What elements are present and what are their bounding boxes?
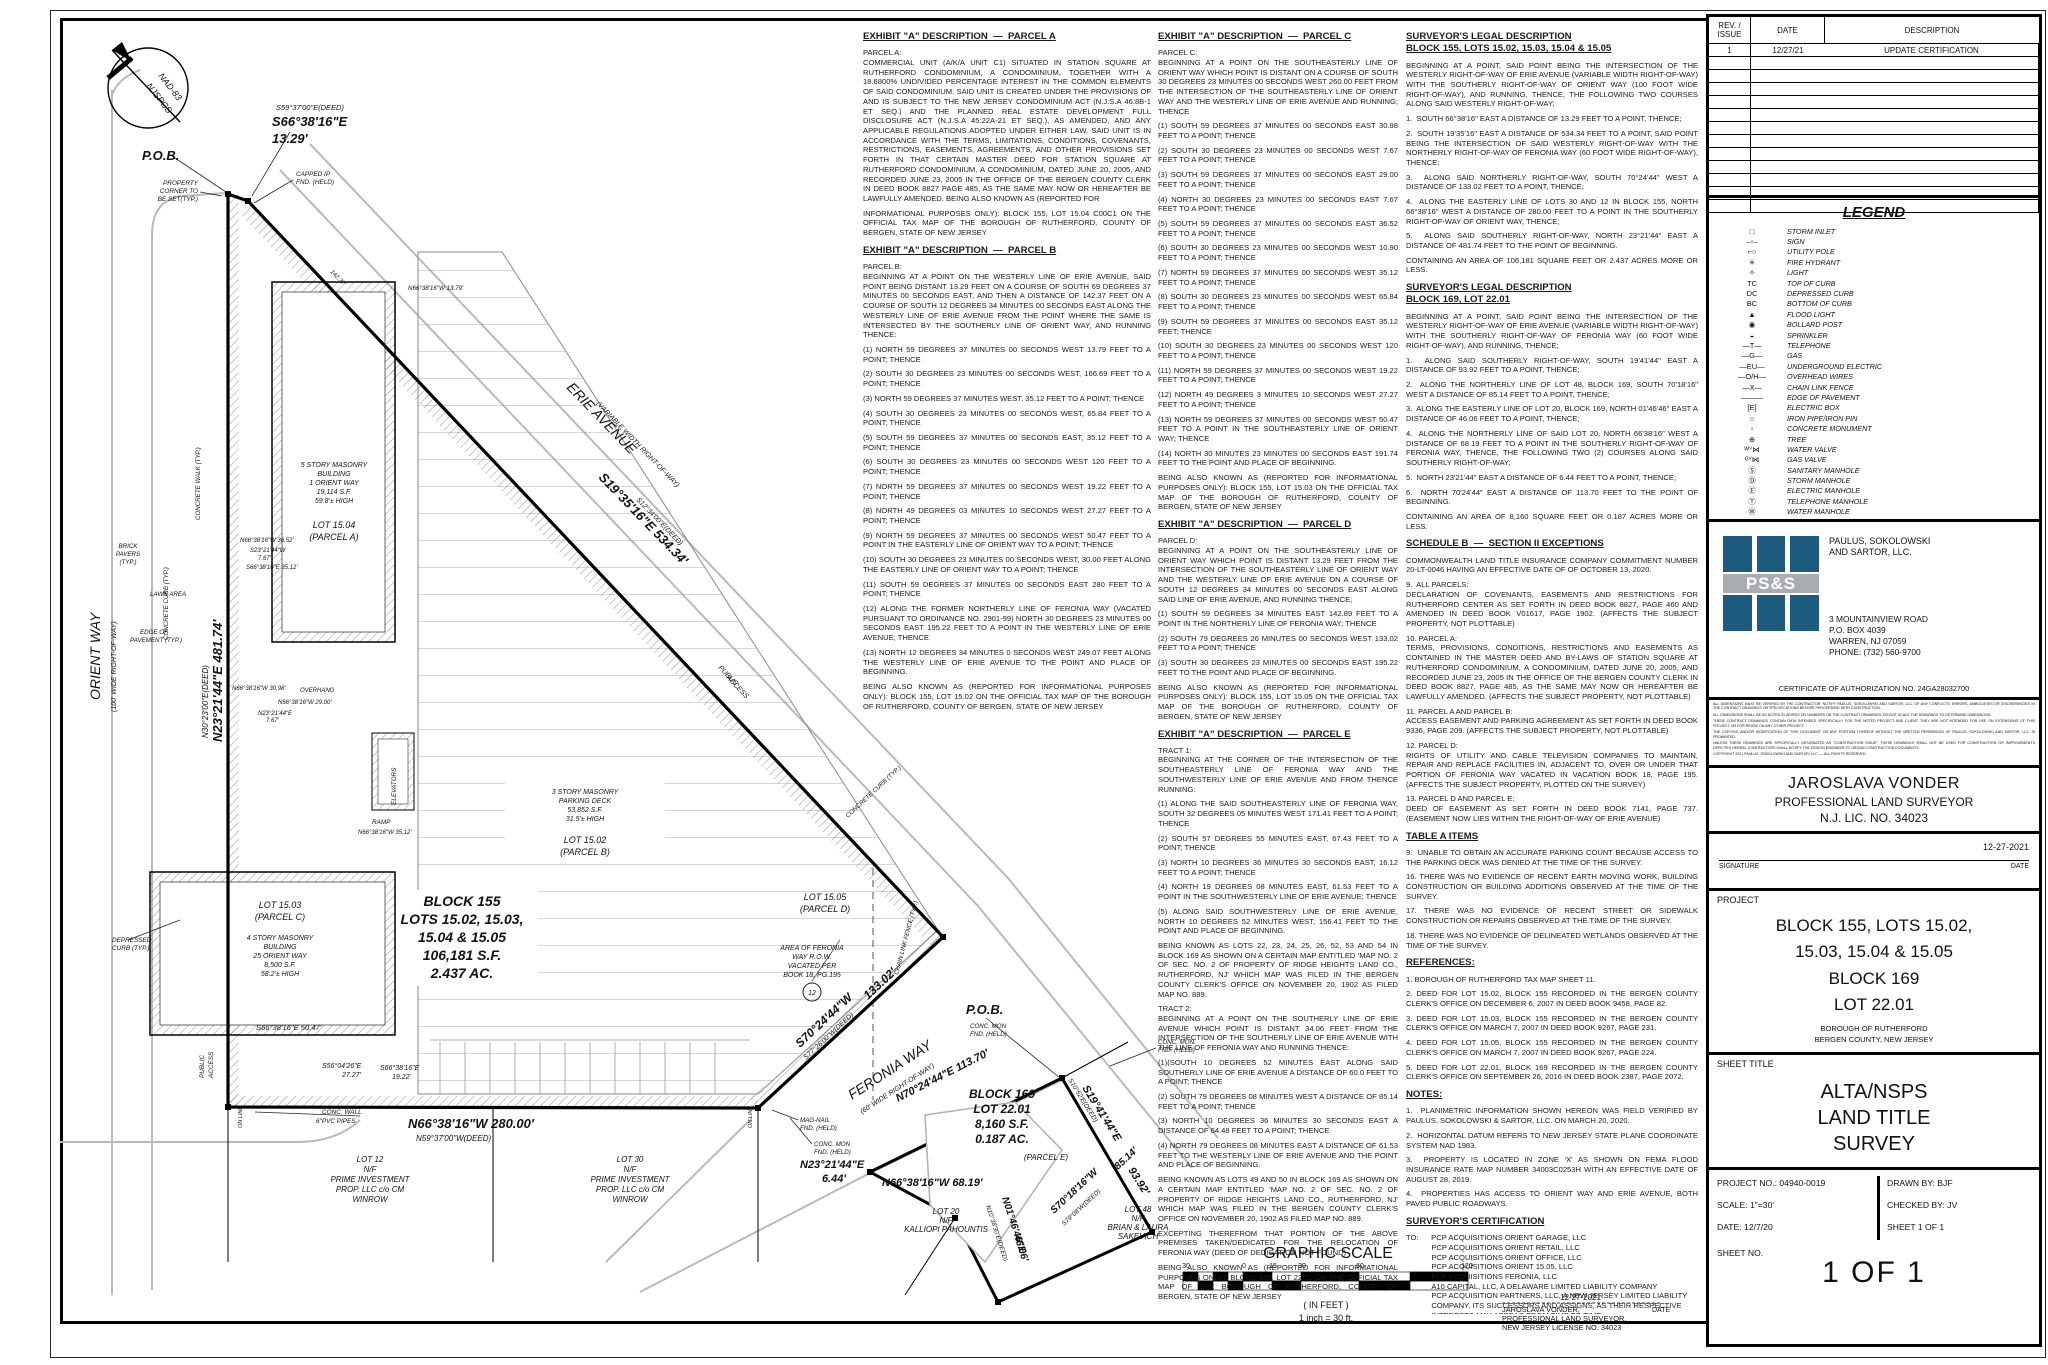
revision-empty-cell <box>1825 161 2039 174</box>
revision-col-desc: DESCRIPTION <box>1825 17 2039 44</box>
legend-item: Ⓢ SANITARY MANHOLE <box>1717 465 2031 475</box>
legend-item: [E] ELECTRIC BOX <box>1717 403 2031 413</box>
legal-paragraph: 6. NORTH 70'24'44" EAST A DISTANCE OF 11… <box>1406 488 1698 507</box>
map-label: AREA OF FERONIA <box>779 945 844 952</box>
map-label: PUBLIC <box>199 1055 206 1078</box>
legal-paragraph: BEGINNING AT A POINT, SAID POINT BEING T… <box>1406 61 1698 110</box>
legal-paragraph: EXHIBIT "A" DESCRIPTION — PARCEL E <box>1158 729 1398 741</box>
legal-paragraph: 13. PARCEL D AND PARCEL E: DEED OF EASEM… <box>1406 794 1698 823</box>
map-label: ORIENT WAY <box>87 611 103 700</box>
legend-symbol-icon: [E] <box>1717 403 1787 412</box>
revision-empty-cell <box>1751 109 1825 122</box>
legal-paragraph: (8) NORTH 49 DEGREES 03 MINUTES 10 SECON… <box>863 506 1151 525</box>
map-label: 7.67' <box>266 718 280 724</box>
legal-paragraph: 4. ALONG THE NORTHERLY LINE OF SAID LOT … <box>1406 429 1698 468</box>
legend-symbol-icon: —X— <box>1717 383 1787 392</box>
legal-paragraph: (9) SOUTH 59 DEGREES 37 MINUTES 00 SECON… <box>1158 317 1398 336</box>
legal-paragraph: 2. SOUTH 19'35'16" EAST A DISTANCE OF 53… <box>1406 129 1698 168</box>
legal-paragraph: (1) ALONG THE SAID SOUTHEASTERLY LINE OF… <box>1158 799 1398 828</box>
legend: LEGEND □ STORM INLET –▫– SIGN ⌐○ <box>1709 198 2039 522</box>
map-label: OVERHANG <box>300 688 335 694</box>
revision-empty-cell <box>1709 148 1751 161</box>
map-label: FND. (HELD) <box>800 1125 837 1132</box>
map-label: N66°38'16"W 29.00' <box>278 700 332 706</box>
legal-paragraph: (12) ALONG THE FORMER NORTHERLY LINE OF … <box>863 604 1151 643</box>
legend-symbol-icon: ᵂⱽ⋈ <box>1717 445 1787 454</box>
map-label: ELEVATORS <box>391 767 398 805</box>
map-label: LOT 30 <box>617 1155 644 1164</box>
legal-paragraph: (8) SOUTH 30 DEGREES 23 MINUTES 00 SECON… <box>1158 292 1398 311</box>
legend-symbol-icon: ✳ <box>1717 258 1787 267</box>
legal-paragraph: (13) NORTH 12 DEGREES 34 MINUTES 0 SECON… <box>863 648 1151 677</box>
legend-item: BC BOTTOM OF CURB <box>1717 299 2031 309</box>
map-label: CONC. MON <box>814 1141 851 1148</box>
legend-item: Ⓦ WATER MANHOLE <box>1717 507 2031 517</box>
legal-paragraph: 9. ALL PARCELS: DECLARATION OF COVENANTS… <box>1406 580 1698 629</box>
checked-by: CHECKED BY: JV <box>1887 1200 1957 1210</box>
legend-item-label: IRON PIPE/IRON PIN <box>1787 414 1857 423</box>
legend-symbol-icon: ⊕ <box>1717 435 1787 444</box>
legal-paragraph: BEING ALSO KNOWN AS (REPORTED FOR INFORM… <box>1158 1263 1398 1302</box>
legend-symbol-icon: Ⓢ <box>1717 465 1787 476</box>
legend-item-label: LIGHT <box>1787 268 1808 277</box>
map-label: 106,181 S.F. <box>423 947 502 963</box>
legal-paragraph: TRACT 2: BEGINNING AT A POINT ON THE SOU… <box>1158 1004 1398 1053</box>
map-label: 8,500 S.F. <box>264 962 295 969</box>
legal-paragraph: INFORMATIONAL PURPOSES ONLY): BLOCK 155,… <box>863 209 1151 238</box>
map-label: ACCESS <box>208 1051 215 1079</box>
map-label: EDGE OF <box>140 629 169 636</box>
legal-paragraph: (7) NORTH 59 DEGREES 37 MINUTES 00 SECON… <box>863 482 1151 501</box>
map-label: 7.67' <box>258 556 272 562</box>
firm-address-1: 3 MOUNTAINVIEW ROAD <box>1829 614 1928 625</box>
firm-block: PS&S PAULUS, SOKOLOWSKI AND SARTOR, LLC.… <box>1709 522 2039 700</box>
revision-empty-cell <box>1709 57 1751 70</box>
firm-name-line2: AND SARTOR, LLC. <box>1829 547 1930 558</box>
revision-empty-cell <box>1825 122 2039 135</box>
map-label: BLOCK 155 <box>423 893 500 909</box>
legal-paragraph: BEGINNING AT A POINT, SAID POINT BEING T… <box>1406 312 1698 351</box>
project-label: PROJECT <box>1717 895 1759 905</box>
map-label: S23°21'44"W <box>250 548 287 554</box>
disclaimer-paragraph: THE COPYING AND/OR MODIFICATION OF THIS … <box>1713 730 2035 739</box>
legend-item-label: GAS <box>1787 351 1802 360</box>
map-label: BUILDING <box>317 471 351 478</box>
legal-paragraph: REFERENCES: <box>1406 957 1698 969</box>
legal-paragraph: 1. ALONG SAID SOUTHERLY RIGHT-OF-WAY, SO… <box>1406 356 1698 375</box>
surveyor-license: N.J. LIC. NO. 34023 <box>1820 811 1928 825</box>
legal-paragraph: 3. ALONG THE EASTERLY LINE OF LOT 20, BL… <box>1406 404 1698 423</box>
surveyor-block: JAROSLAVA VONDER PROFESSIONAL LAND SURVE… <box>1709 768 2039 834</box>
map-label: PRIME INVESTMENT <box>330 1175 410 1184</box>
legal-paragraph: 11. PARCEL A AND PARCEL B: ACCESS EASEME… <box>1406 707 1698 736</box>
legal-paragraph: (10) SOUTH 30 DEGREES 23 MINUTES 00 SECO… <box>1158 341 1398 360</box>
legend-item-label: FIRE HYDRANT <box>1787 258 1840 267</box>
disclaimer-block: ALL DIMENSIONS MUST BE VERIFIED BY THE C… <box>1709 700 2039 768</box>
sheet-no-value: 1 OF 1 <box>1709 1256 2039 1290</box>
legal-paragraph: SCHEDULE B — SECTION II EXCEPTIONS <box>1406 538 1698 550</box>
legend-item-label: ELECTRIC BOX <box>1787 403 1840 412</box>
legend-item-label: GAS VALVE <box>1787 455 1827 464</box>
legal-paragraph: TRACT 1: BEGINNING AT THE CORNER OF THE … <box>1158 746 1398 795</box>
legal-paragraph: (13) NORTH 59 DEGREES 37 MINUTES 00 SECO… <box>1158 415 1398 444</box>
map-label: N66°38'16"W 35.12' <box>358 830 412 836</box>
legal-paragraph: (5) SOUTH 59 DEGREES 37 MINUTES 00 SECON… <box>863 433 1151 452</box>
map-label: PROP. LLC c/o CM <box>336 1185 405 1194</box>
map-label: WINROW <box>352 1195 389 1204</box>
legal-paragraph: TO: PCP ACQUISITIONS ORIENT GARAGE, LLC … <box>1406 1233 1698 1314</box>
map-label: PAVEMENT (TYP.) <box>130 637 182 644</box>
legal-paragraph: 1. BOROUGH OF RUTHERFORD TAX MAP SHEET 1… <box>1406 975 1698 985</box>
legal-paragraph: (1) SOUTH 59 DEGREES 37 MINUTES 00 SECON… <box>1158 121 1398 140</box>
sheet-count: SHEET 1 OF 1 <box>1887 1222 1944 1232</box>
legal-paragraph: (11) SOUTH 59 DEGREES 37 MINUTES 00 SECO… <box>863 580 1151 599</box>
legend-item: Ⓔ ELECTRIC MANHOLE <box>1717 486 2031 496</box>
legend-symbol-icon: ◒ <box>1717 331 1787 340</box>
revision-empty-cell <box>1825 135 2039 148</box>
map-label: 19,114 S.F. <box>317 489 352 496</box>
legend-item: ——— EDGE OF PAVEMENT <box>1717 392 2031 402</box>
revision-empty-cell <box>1825 70 2039 83</box>
legend-item: —X— CHAIN LINK FENCE <box>1717 382 2031 392</box>
map-label: 1 inch = 30 ft. <box>1299 1313 1353 1323</box>
legal-paragraph: (1) SOUTH 59 DEGREES 34 MINUTES EAST 142… <box>1158 609 1398 628</box>
legend-item-label: STORM INLET <box>1787 227 1835 236</box>
map-label: 53,852 S.F. <box>567 807 602 814</box>
revision-date: 12/27/21 <box>1751 44 1825 57</box>
legend-item: ○ IRON PIPE/IRON PIN <box>1717 413 2031 423</box>
revision-rev: 1 <box>1709 44 1751 57</box>
legal-paragraph: (4) NORTH 79 DEGREES 08 MINUTES EAST A D… <box>1158 1141 1398 1170</box>
legal-paragraph: PARCEL D: BEGINNING AT A POINT ON THE SO… <box>1158 536 1398 604</box>
legend-symbol-icon: DC <box>1717 289 1787 298</box>
map-label: FND. (HELD) <box>296 179 334 186</box>
legend-symbol-icon: TC <box>1717 279 1787 288</box>
map-label: 4 STORY MASONRY <box>247 935 315 942</box>
legal-paragraph: (3) NORTH 59 DEGREES 37 MINUTES WEST, 35… <box>863 394 1151 404</box>
revision-empty-rows <box>1709 57 2039 213</box>
map-label: 58.2'± HIGH <box>261 971 300 978</box>
legend-item-label: TREE <box>1787 435 1806 444</box>
legend-item-label: SANITARY MANHOLE <box>1787 466 1860 475</box>
legend-item: ✧ LIGHT <box>1717 268 2031 278</box>
legal-paragraph: (4) NORTH 19 DEGREES 08 MINUTES EAST, 61… <box>1158 882 1398 901</box>
map-label: BOOK 18, PG.195 <box>783 972 841 979</box>
legend-item-label: CONCRETE MONUMENT <box>1787 424 1872 433</box>
map-label: 6"PVC PIPES <box>316 1118 356 1125</box>
legal-paragraph: SURVEYOR'S CERTIFICATION <box>1406 1216 1698 1228</box>
legend-item-label: SPRINKLER <box>1787 331 1828 340</box>
map-label: N/F <box>364 1165 378 1174</box>
map-label: ON LINE <box>748 1106 754 1128</box>
disclaimer-paragraph: UNLESS THESE DRAWINGS ARE SPECIFICALLY D… <box>1713 741 2035 750</box>
legend-item: —T— TELEPHONE <box>1717 340 2031 350</box>
map-label: FND. (HELD) <box>814 1149 851 1156</box>
legend-symbol-icon: –▫– <box>1717 237 1787 246</box>
legend-symbol-icon: BC <box>1717 299 1787 308</box>
surveyor-title: PROFESSIONAL LAND SURVEYOR <box>1775 795 1974 809</box>
legal-paragraph: (1)(SOUTH 10 DEGREES 52 MINUTES EAST ALO… <box>1158 1058 1398 1087</box>
disclaimer-paragraph: ALL DIMENSIONS SHALL BE AS NOTED IN WORD… <box>1713 713 2035 717</box>
legal-paragraph: BEING KNOWN AS LOTS 49 AND 50 IN BLOCK 1… <box>1158 1175 1398 1224</box>
legal-paragraph: (6) SOUTH 30 DEGREES 23 MINUTES 00 SECON… <box>863 457 1151 476</box>
legend-item: ⊕ TREE <box>1717 434 2031 444</box>
legal-paragraph: (12) NORTH 49 DEGREES 3 MINUTES 10 SECON… <box>1158 390 1398 409</box>
legal-paragraph: PARCEL C: BEGINNING AT A POINT ON THE SO… <box>1158 48 1398 116</box>
legend-item-label: CHAIN LINK FENCE <box>1787 383 1854 392</box>
revision-empty-cell <box>1825 96 2039 109</box>
legal-paragraph: 1. PLANIMETRIC INFORMATION SHOWN HEREON … <box>1406 1106 1698 1125</box>
map-label: N23°21'44"E <box>800 1159 865 1171</box>
map-label: PAVERS <box>116 551 141 558</box>
legal-paragraph: (5) ALONG SAID SOUTHWESTERLY LINE OF ERI… <box>1158 907 1398 936</box>
project-municipality: BOROUGH OF RUTHERFORD <box>1709 1024 2039 1034</box>
map-label: 15.04 & 15.05 <box>418 929 506 945</box>
map-label: LOT 15.05 <box>804 892 848 902</box>
legend-symbol-icon: Ⓦ <box>1717 506 1787 517</box>
sheet-title-line1: ALTA/NSPS <box>1709 1079 2039 1105</box>
map-label: N66°38'16"W 36.52' <box>240 538 294 544</box>
project-line3: BLOCK 169 <box>1709 966 2039 992</box>
legend-symbol-icon: —EU— <box>1717 362 1787 371</box>
legal-paragraph: EXHIBIT "A" DESCRIPTION — PARCEL A <box>863 31 1151 43</box>
legal-paragraph: SURVEYOR'S LEGAL DESCRIPTION BLOCK 155, … <box>1406 31 1698 56</box>
map-label: S66°38'16"E 50.47' <box>256 1023 322 1032</box>
legal-paragraph: (3) NORTH 10 DEGREES 36 MINUTES 30 SECON… <box>1158 858 1398 877</box>
legend-item: ✳ FIRE HYDRANT <box>1717 257 2031 267</box>
map-label: S56°04'26"E <box>322 1062 362 1070</box>
map-label: 6.44' <box>822 1173 846 1185</box>
disclaimer-paragraph: COPYRIGHT 2021 PAULUS, SOKOLOWSKI AND SA… <box>1713 752 2035 756</box>
legal-paragraph: 12. PARCEL D: RIGHTS OF UTILITY AND CABL… <box>1406 741 1698 790</box>
legend-item: ᵂⱽ⋈ WATER VALVE <box>1717 444 2031 454</box>
project-number: PROJECT NO.: 04940-0019 <box>1717 1178 1825 1188</box>
legal-paragraph: 5. DEED FOR LOT 22.01, BLOCK 169 RECORDE… <box>1406 1063 1698 1082</box>
map-label: S66°38'16"E 35.12' <box>246 565 298 571</box>
legal-paragraph: (11) NORTH 59 DEGREES 37 MINUTES 00 SECO… <box>1158 366 1398 385</box>
legal-paragraph: (3) SOUTH 30 DEGREES 23 MINUTES 00 SECON… <box>1158 658 1398 677</box>
map-label: LOT 15.02 <box>564 835 607 845</box>
map-label: CONC. WALL <box>322 1109 362 1116</box>
map-label: 27.27' <box>341 1072 362 1079</box>
psands-logo-icon: PS&S <box>1723 536 1819 632</box>
legend-item-label: OVERHEAD WIRES <box>1787 372 1853 381</box>
legal-paragraph: (3) SOUTH 59 DEGREES 37 MINUTES 00 SECON… <box>1158 170 1398 189</box>
map-label: N66°38'16"W 280.00' <box>408 1116 535 1131</box>
surveyor-name: JAROSLAVA VONDER <box>1788 775 1960 793</box>
revision-empty-cell <box>1709 109 1751 122</box>
map-label: 31.5'± HIGH <box>566 816 605 823</box>
map-label: S66°38'16"E <box>380 1064 420 1072</box>
legal-paragraph: BEING ALSO KNOWN AS (REPORTED FOR INFORM… <box>863 682 1151 711</box>
legend-item-label: EDGE OF PAVEMENT <box>1787 393 1860 402</box>
legal-paragraph: (10) SOUTH 30 DEGREES 23 MINUTES 00 SECO… <box>863 555 1151 574</box>
map-label: 13.29' <box>272 131 309 146</box>
legend-item: –▫– SIGN <box>1717 236 2031 246</box>
map-label: (PARCEL D) <box>800 904 850 914</box>
legal-paragraph: (2) SOUTH 30 DEGREES 23 MINUTES 00 SECON… <box>863 369 1151 388</box>
legend-item-label: TOP OF CURB <box>1787 279 1836 288</box>
legend-item: ᴳⱽ⋈ GAS VALVE <box>1717 455 2031 465</box>
legend-symbol-icon: —G— <box>1717 351 1787 360</box>
map-label: N/F <box>624 1165 638 1174</box>
firm-address-2: P.O. BOX 4039 <box>1829 625 1928 636</box>
legal-paragraph: CONTAINING AN AREA OF 106,181 SQUARE FEE… <box>1406 256 1698 275</box>
revision-empty-cell <box>1709 135 1751 148</box>
legal-paragraph: (1) NORTH 59 DEGREES 37 MINUTES 00 SECON… <box>863 345 1151 364</box>
sheet-info-block: PROJECT NO.: 04940-0019 SCALE: 1"=30' DA… <box>1709 1170 2039 1344</box>
legend-title: LEGEND <box>1717 204 2031 221</box>
revision-empty-cell <box>1751 174 1825 187</box>
map-label: WAY R.O.W. <box>792 954 832 961</box>
legal-paragraph: 5. ALONG SAID SOUTHERLY RIGHT-OF-WAY, NO… <box>1406 231 1698 250</box>
legal-paragraph: 2. HORIZONTAL DATUM REFERS TO NEW JERSEY… <box>1406 1131 1698 1150</box>
map-label: N23°21'44"E <box>258 711 293 717</box>
legal-paragraph: 2. ALONG THE NORTHERLY LINE OF LOT 48, B… <box>1406 380 1698 399</box>
legend-symbol-icon: Ⓣ <box>1717 496 1787 507</box>
map-label: (100' WIDE RIGHT-OF-WAY) <box>111 621 118 712</box>
revision-empty-cell <box>1709 161 1751 174</box>
legend-symbol-icon: ▲ <box>1717 310 1787 319</box>
map-label: CONCRETE WALK (TYP.) <box>195 447 202 520</box>
exhibit-a-column-2: EXHIBIT "A" DESCRIPTION — PARCEL CPARCEL… <box>1158 24 1398 1314</box>
legal-paragraph: (14) NORTH 30 MINUTES 23 MINUTES 00 SECO… <box>1158 449 1398 468</box>
legend-item-label: TELEPHONE <box>1787 341 1831 350</box>
map-label: 2.437 AC. <box>430 965 494 981</box>
map-label: (PARCEL A) <box>309 532 358 542</box>
legend-symbol-icon: ○ <box>1717 414 1787 423</box>
map-label: CURB (TYP.) <box>112 945 150 952</box>
legend-symbol-icon: ▫ <box>1717 424 1787 433</box>
signature-line <box>1719 860 2029 861</box>
map-label: (PARCEL C) <box>255 912 305 922</box>
signature-date: 12-27-2021 <box>1983 842 2029 852</box>
legal-paragraph: 9. UNABLE TO OBTAIN AN ACCURATE PARKING … <box>1406 848 1698 867</box>
revision-empty-cell <box>1825 109 2039 122</box>
legend-item-label: BOLLARD POST <box>1787 320 1842 329</box>
map-label: PROFESSIONAL LAND SURVEYOR, <box>1502 1314 1626 1323</box>
legal-paragraph: 1. SOUTH 66°38'16" EAST A DISTANCE OF 13… <box>1406 114 1698 124</box>
sheet-title-line3: SURVEY <box>1709 1131 2039 1157</box>
legal-paragraph: 4. PROPERTIES HAS ACCESS TO ORIENT WAY A… <box>1406 1189 1698 1208</box>
legal-paragraph: 3. PROPERTY IS LOCATED IN ZONE 'X' AS SH… <box>1406 1155 1698 1184</box>
legend-item-label: ELECTRIC MANHOLE <box>1787 486 1860 495</box>
map-label: BUILDING <box>263 944 297 951</box>
map-label: NEW JERSEY LICENSE NO. 34023 <box>1502 1323 1621 1332</box>
map-label: WINROW <box>612 1195 649 1204</box>
map-label: 1 ORIENT WAY <box>309 480 360 487</box>
date-value: DATE: 12/7/20 <box>1717 1222 1773 1232</box>
legend-item-label: WATER VALVE <box>1787 445 1837 454</box>
legal-paragraph: BEING ALSO KNOWN AS (REPORTED FOR INFORM… <box>1158 473 1398 512</box>
revision-empty-cell <box>1751 70 1825 83</box>
map-label: VACATED PER <box>788 963 837 970</box>
project-line1: BLOCK 155, LOTS 15.02, <box>1709 913 2039 939</box>
legal-paragraph: (6) SOUTH 30 DEGREES 23 MINUTES 00 SECON… <box>1158 243 1398 262</box>
legal-paragraph: 4. DEED FOR LOT 15.05, BLOCK 155 RECORDE… <box>1406 1038 1698 1057</box>
legend-item: ◉ BOLLARD POST <box>1717 320 2031 330</box>
exhibit-a-column-1: EXHIBIT "A" DESCRIPTION — PARCEL APARCEL… <box>863 24 1151 1314</box>
legend-item-label: WATER MANHOLE <box>1787 507 1850 516</box>
map-label: (PARCEL B) <box>560 847 610 857</box>
project-line2: 15.03, 15.04 & 15.05 <box>1709 939 2039 965</box>
legend-item-label: TELEPHONE MANHOLE <box>1787 497 1868 506</box>
legal-paragraph: 5. NORTH 23'21'44" EAST A DISTANCE OF 6.… <box>1406 473 1698 483</box>
legal-paragraph: 2. DEED FOR LOT 15.02, BLOCK 155 RECORDE… <box>1406 989 1698 1008</box>
project-line4: LOT 22.01 <box>1709 992 2039 1018</box>
revision-empty-cell <box>1709 83 1751 96</box>
title-block-panel: REV. / ISSUE DATE DESCRIPTION 1 12/27/21… <box>1706 14 2042 1347</box>
legend-item: —O/H— OVERHEAD WIRES <box>1717 371 2031 381</box>
legend-item: ⌐○ UTILITY POLE <box>1717 247 2031 257</box>
legend-item: ▲ FLOOD LIGHT <box>1717 309 2031 319</box>
legal-paragraph: (4) SOUTH 30 DEGREES 23 MINUTES 00 SECON… <box>863 409 1151 428</box>
legend-item: Ⓓ STORM MANHOLE <box>1717 475 2031 485</box>
signature-block: 12-27-2021 SIGNATURE DATE <box>1709 834 2039 891</box>
map-label: 25 ORIENT WAY <box>252 953 308 960</box>
legal-paragraph: 17. THERE WAS NO EVIDENCE OF RECENT STRE… <box>1406 906 1698 925</box>
legal-paragraph: BEING KNOWN AS LOTS 22, 23, 24, 25, 26, … <box>1158 941 1398 999</box>
info-divider <box>1877 1176 1880 1240</box>
legend-item: Ⓣ TELEPHONE MANHOLE <box>1717 496 2031 506</box>
revision-desc: UPDATE CERTIFICATION <box>1825 44 2039 57</box>
survey-sheet: S59°37'00"E(DEED)S66°38'16"E13.29'P.O.B.… <box>0 0 2048 1365</box>
legal-paragraph: (2) SOUTH 57 DEGREES 55 MINUTES EAST, 67… <box>1158 834 1398 853</box>
project-block: PROJECT BLOCK 155, LOTS 15.02, 15.03, 15… <box>1709 891 2039 1055</box>
revision-header-row: REV. / ISSUE DATE DESCRIPTION <box>1709 17 2039 44</box>
legend-symbol-icon: ⌐○ <box>1717 247 1787 256</box>
map-label: N66°38'16"W 30.98' <box>232 686 286 692</box>
revision-empty-cell <box>1751 148 1825 161</box>
date-label: DATE <box>2011 863 2029 870</box>
legal-paragraph: EXCEPTING THEREFROM THAT PORTION OF THE … <box>1158 1229 1398 1258</box>
legend-symbol-icon: Ⓔ <box>1717 485 1787 496</box>
map-label: 5 STORY MASONRY <box>301 462 369 469</box>
revision-empty-cell <box>1751 57 1825 70</box>
legend-item: TC TOP OF CURB <box>1717 278 2031 288</box>
map-label: (TYP.) <box>119 559 136 566</box>
legend-item-label: DEPRESSED CURB <box>1787 289 1854 298</box>
map-label: 3 STORY MASONRY <box>552 789 620 796</box>
map-label: PRIME INVESTMENT <box>590 1175 670 1184</box>
legend-item: ◒ SPRINKLER <box>1717 330 2031 340</box>
sheet-title-label: SHEET TITLE <box>1717 1059 1774 1069</box>
revision-empty-cell <box>1751 96 1825 109</box>
legal-paragraph: PARCEL A: COMMERCIAL UNIT (A/K/A UNIT C1… <box>863 48 1151 204</box>
legend-item: —G— GAS <box>1717 351 2031 361</box>
revision-rows: 1 12/27/21 UPDATE CERTIFICATION <box>1709 44 2039 57</box>
map-label: DEPRESSED <box>112 937 152 944</box>
map-label: N23°21'44"E 481.74' <box>210 619 225 742</box>
sheet-title-line2: LAND TITLE <box>1709 1105 2039 1131</box>
revision-table: REV. / ISSUE DATE DESCRIPTION 1 12/27/21… <box>1709 17 2039 198</box>
map-label: PROP. LLC c/o CM <box>596 1185 665 1194</box>
revision-col-rev: REV. / ISSUE <box>1709 17 1751 44</box>
map-label: CORNER TO <box>160 188 198 195</box>
map-label: BE SET(TYP.) <box>158 196 198 203</box>
psands-logo-text: PS&S <box>1746 574 1796 594</box>
legal-paragraph: 3. ALONG SAID NORTHERLY RIGHT-OF-WAY, SO… <box>1406 173 1698 192</box>
legal-paragraph: (2) SOUTH 79 DEGREES 26 MINUTES 00 SECON… <box>1158 634 1398 653</box>
scale-value: SCALE: 1"=30' <box>1717 1200 1774 1210</box>
revision-empty-cell <box>1825 57 2039 70</box>
map-label: 19.22' <box>392 1074 412 1081</box>
firm-name-line1: PAULUS, SOKOLOWSKI <box>1829 536 1930 547</box>
legend-symbol-icon: —O/H— <box>1717 372 1787 381</box>
legend-symbol-icon: ✧ <box>1717 268 1787 277</box>
map-label: CAPPED IP <box>296 171 331 178</box>
legal-paragraph: PARCEL B: BEGINNING AT A POINT ON THE WE… <box>863 262 1151 340</box>
